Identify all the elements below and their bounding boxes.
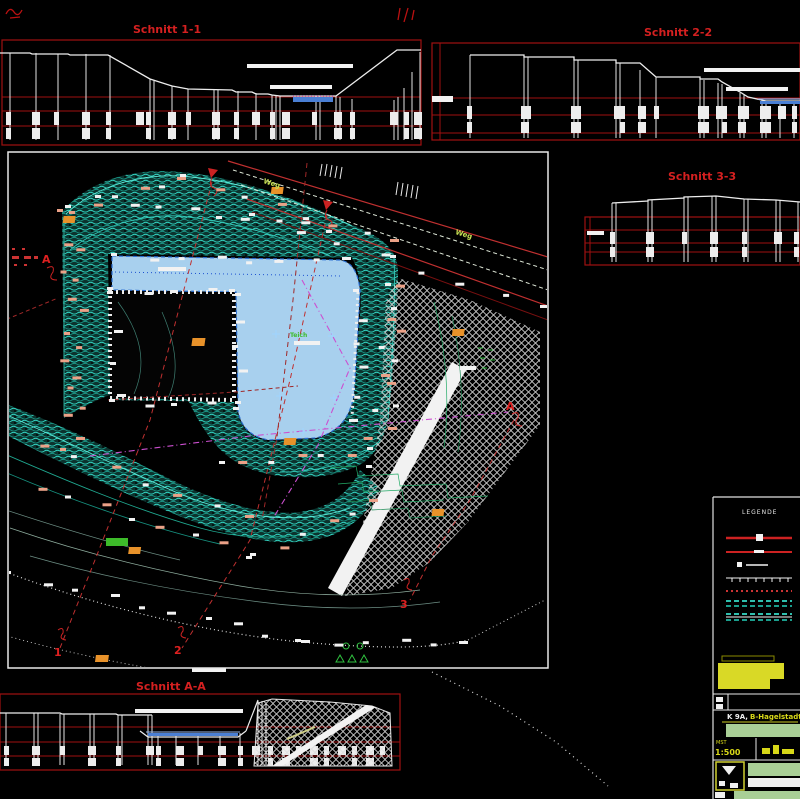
pond-label: Teich xyxy=(290,332,307,339)
tick-label xyxy=(68,298,77,301)
tick-label xyxy=(246,556,252,559)
tick-label xyxy=(94,204,103,207)
hatch-block xyxy=(792,122,797,133)
hatch-block xyxy=(350,128,355,139)
logo-triangle-icon xyxy=(722,766,736,775)
hatch-block xyxy=(4,746,9,755)
hatch-block xyxy=(4,758,9,766)
titleblock-code: K 9A, xyxy=(727,713,748,721)
tick-label xyxy=(242,196,248,199)
hatch-block xyxy=(32,758,40,766)
hatch-block xyxy=(60,746,65,755)
tick-label xyxy=(297,231,306,234)
tick-label xyxy=(95,195,101,198)
marker-1: 1 xyxy=(54,646,62,659)
hatch-block xyxy=(82,112,90,125)
hatch-block xyxy=(404,128,409,139)
hatch-block xyxy=(682,232,687,244)
tick-label xyxy=(110,362,116,365)
tick-label xyxy=(334,242,340,245)
hatch-block xyxy=(794,247,799,257)
tick-label xyxy=(241,218,250,221)
hatch-block xyxy=(414,112,422,125)
hatch-block xyxy=(156,758,161,766)
tick-label xyxy=(159,185,165,188)
hatch-block xyxy=(146,112,151,125)
tick-label xyxy=(111,253,117,256)
hatch-block xyxy=(620,106,625,119)
tick-label xyxy=(233,407,239,410)
tick-label xyxy=(385,283,391,286)
hatch-block xyxy=(270,112,275,125)
tick-label xyxy=(301,640,310,643)
hatch-block xyxy=(792,106,797,119)
tick-label xyxy=(365,232,371,235)
tick-label xyxy=(367,447,373,450)
titleblock-white-bar xyxy=(748,778,800,787)
tick-label xyxy=(330,519,339,522)
hatch-block xyxy=(252,112,260,125)
tick-label xyxy=(268,461,274,464)
tick-label xyxy=(76,437,85,440)
hatch-block xyxy=(282,112,290,125)
tick-label xyxy=(112,195,118,198)
hatch-block xyxy=(32,128,40,139)
section-1-1-title: Schnitt 1-1 xyxy=(133,23,201,36)
cad-canvas[interactable]: Schnitt 1-1 Schnitt 2-2 Schnitt 3-3 Schn… xyxy=(0,0,800,799)
marker-2: 2 xyxy=(174,644,182,657)
tick-label xyxy=(72,589,78,592)
tick-label xyxy=(179,257,185,260)
hatch-block xyxy=(218,746,226,755)
tick-label xyxy=(215,504,221,507)
hatch-block xyxy=(722,122,727,133)
tick-label xyxy=(459,641,468,644)
tick-label xyxy=(72,376,81,379)
tick-label xyxy=(274,260,283,263)
marker-a-left: A xyxy=(42,253,51,266)
hatch-block xyxy=(116,746,121,755)
tick-label xyxy=(250,553,256,556)
tick-label xyxy=(209,288,218,291)
tick-label xyxy=(303,217,309,220)
tick-label xyxy=(156,206,162,209)
hatch-block xyxy=(146,746,154,755)
hatch-block xyxy=(742,247,747,257)
stray-red-glyphs xyxy=(6,8,414,22)
tick-label xyxy=(40,445,49,448)
tick-label xyxy=(109,399,115,402)
hatch-block xyxy=(6,128,11,139)
tick-label xyxy=(278,203,287,206)
tick-label xyxy=(295,639,301,642)
tick-label xyxy=(239,370,248,373)
tick-label xyxy=(73,279,79,282)
section-3-3: Schnitt 3-3 xyxy=(585,170,800,265)
tick-label xyxy=(397,330,406,333)
hatch-block xyxy=(54,112,59,125)
hatch-block xyxy=(156,746,161,755)
tick-label xyxy=(318,454,324,457)
tick-label xyxy=(326,230,332,233)
section-a-a-title: Schnitt A-A xyxy=(136,680,206,693)
hatch-block xyxy=(646,232,654,244)
tick-label xyxy=(60,448,66,451)
tick-label xyxy=(390,239,399,242)
hatch-block xyxy=(744,106,749,119)
tick-label xyxy=(71,455,77,458)
tick-label xyxy=(277,220,283,223)
tick-label xyxy=(402,639,411,642)
tick-label xyxy=(235,293,241,296)
title-block: K 9A, B-Hagelstadt MST 1:500 xyxy=(713,656,800,799)
hatch-block xyxy=(176,758,184,766)
tick-label xyxy=(354,342,360,345)
tick-label xyxy=(145,292,154,295)
tick-label xyxy=(39,488,48,491)
tick-label xyxy=(64,332,70,335)
tree-symbols xyxy=(336,643,368,674)
hatch-block xyxy=(521,122,529,133)
tick-label xyxy=(112,466,121,469)
tick-label xyxy=(387,382,396,385)
tick-label xyxy=(229,289,235,292)
tick-label xyxy=(150,259,159,262)
tick-label xyxy=(177,177,186,180)
tick-label xyxy=(348,454,357,457)
tick-label xyxy=(328,224,337,227)
hatch-block xyxy=(778,106,786,119)
tick-label xyxy=(431,643,437,646)
titleblock-name: B-Hagelstadt xyxy=(750,713,800,721)
hatch-block xyxy=(610,232,615,244)
tick-label xyxy=(359,319,368,322)
tick-label xyxy=(114,330,123,333)
hatch-block xyxy=(234,112,239,125)
tick-label xyxy=(249,213,255,216)
island xyxy=(110,292,234,400)
tick-label xyxy=(238,461,247,464)
tick-label xyxy=(44,583,53,586)
tick-label xyxy=(503,294,509,297)
tick-label xyxy=(76,248,85,251)
hatch-block xyxy=(238,746,243,755)
hatch-block xyxy=(638,122,646,133)
tick-label xyxy=(369,499,378,502)
water-surface xyxy=(760,101,800,104)
section-2-2-title: Schnitt 2-2 xyxy=(644,26,712,39)
tick-label xyxy=(57,209,63,212)
hatch-block xyxy=(32,112,40,125)
legend-title: LEGENDE xyxy=(742,509,777,516)
green-field-marker xyxy=(106,538,128,546)
tick-label xyxy=(301,221,310,224)
hatch-block xyxy=(710,247,718,257)
hatch-block xyxy=(212,112,220,125)
hatch-block xyxy=(576,106,581,119)
hatch-block xyxy=(218,758,226,766)
hatch-block xyxy=(722,106,727,119)
hatch-block xyxy=(467,106,472,119)
tick-label xyxy=(107,291,113,294)
marker-a-right: A xyxy=(506,400,515,413)
section-2-2: Schnitt 2-2 xyxy=(432,26,800,140)
tick-label xyxy=(232,345,238,348)
hatch-block xyxy=(106,112,111,125)
hatch-block xyxy=(467,122,472,133)
tick-label xyxy=(146,405,155,408)
hatch-block xyxy=(610,247,615,257)
tick-label xyxy=(334,644,343,647)
section-3-3-title: Schnitt 3-3 xyxy=(668,170,736,183)
tick-label xyxy=(60,359,69,362)
tick-label xyxy=(418,272,424,275)
tick-label xyxy=(117,394,126,397)
legend-row-contour-a xyxy=(726,601,792,606)
tick-label xyxy=(299,454,308,457)
hatch-block xyxy=(82,128,90,139)
tick-label xyxy=(65,496,71,499)
hatch-block xyxy=(638,106,646,119)
tick-label xyxy=(363,641,369,644)
hatch-block xyxy=(646,247,654,257)
tick-label xyxy=(156,526,165,529)
hatch-block xyxy=(312,112,317,125)
legend-row-contour-b xyxy=(726,614,792,620)
tick-label xyxy=(216,216,222,219)
tick-label xyxy=(364,437,373,440)
tick-label xyxy=(65,205,71,208)
hatch-block xyxy=(32,746,40,755)
hatch-block xyxy=(186,112,191,125)
tick-label xyxy=(1,473,7,476)
hatch-block xyxy=(654,106,659,119)
tick-label xyxy=(167,612,176,615)
hatch-block xyxy=(766,106,771,119)
tick-label xyxy=(64,414,73,417)
tick-label xyxy=(193,534,199,537)
tick-label xyxy=(131,204,140,207)
tick-label xyxy=(391,307,397,310)
tick-label xyxy=(191,207,200,210)
hatch-block xyxy=(176,746,184,755)
tick-label xyxy=(349,419,358,422)
tick-label xyxy=(171,290,177,293)
tick-label xyxy=(216,188,225,191)
tick-label xyxy=(393,404,399,407)
tick-label xyxy=(218,256,227,259)
boundary-line-continuation xyxy=(432,672,608,786)
hatch-block xyxy=(350,112,355,125)
tick-label xyxy=(262,635,268,638)
tick-label xyxy=(350,513,356,516)
hatch-block xyxy=(238,758,243,766)
section-1-1: Schnitt 1-1 xyxy=(0,23,422,145)
marker-3: 3 xyxy=(400,598,408,611)
hatch-block xyxy=(414,128,422,139)
tick-label xyxy=(353,289,359,292)
hatch-block xyxy=(710,232,718,244)
titleblock-green-bar-2 xyxy=(748,763,800,776)
tick-label xyxy=(354,396,360,399)
hatch-block xyxy=(6,112,11,125)
hatch-block xyxy=(704,106,709,119)
hatch-block xyxy=(282,128,290,139)
hatch-block xyxy=(116,758,121,766)
tick-label xyxy=(0,427,5,430)
hatch-block xyxy=(404,112,409,125)
tick-label xyxy=(382,253,391,256)
tick-label xyxy=(171,403,177,406)
legend-row-section-line xyxy=(726,534,792,541)
section-a-a: Schnitt A-A xyxy=(0,668,400,770)
tick-label xyxy=(61,271,67,274)
titleblock-green-bar-1 xyxy=(726,724,800,737)
legend-row-dashed-red xyxy=(726,550,792,553)
hatch-block xyxy=(88,746,96,755)
water-surface xyxy=(148,733,238,736)
hatch-block xyxy=(526,106,531,119)
tick-label xyxy=(68,387,74,390)
tick-label xyxy=(300,533,306,536)
tick-label xyxy=(208,402,217,405)
titleblock-green-bar-3 xyxy=(734,791,800,799)
tick-label xyxy=(379,346,385,349)
scale-label: MST xyxy=(716,740,727,746)
tick-label xyxy=(173,494,182,497)
hatch-block xyxy=(270,128,275,139)
tick-label xyxy=(69,211,75,214)
tick-label xyxy=(180,174,186,177)
hatch-block xyxy=(334,112,342,125)
road-label-2: Weg xyxy=(454,228,473,241)
tick-label xyxy=(235,401,241,404)
tick-label xyxy=(206,617,212,620)
hatch-block xyxy=(198,746,203,755)
tick-label xyxy=(107,287,113,290)
tick-label xyxy=(381,374,390,377)
hatch-block xyxy=(334,128,342,139)
approval-scribble xyxy=(762,745,794,754)
hatch-block xyxy=(168,128,176,139)
tick-label xyxy=(314,258,320,261)
water-surface xyxy=(293,97,333,102)
tick-label xyxy=(280,546,289,549)
hatch-block xyxy=(766,122,771,133)
tick-label xyxy=(139,606,145,609)
tick-label xyxy=(388,427,397,430)
hatch-block xyxy=(704,122,709,133)
hatch-block xyxy=(794,232,799,244)
hatch-block xyxy=(234,128,239,139)
tick-label xyxy=(219,461,225,464)
tick-label xyxy=(103,503,112,506)
scale-value: 1:500 xyxy=(715,748,741,757)
tick-label xyxy=(392,359,398,362)
tick-label xyxy=(455,283,464,286)
tick-label xyxy=(236,321,245,324)
tick-label xyxy=(342,257,351,260)
tick-label xyxy=(80,309,89,312)
tick-label xyxy=(372,409,378,412)
tick-label xyxy=(220,541,229,544)
tick-label xyxy=(141,187,150,190)
tick-label xyxy=(390,255,396,258)
site-plan[interactable]: Weg Weg Teich 1 2 3 A A xyxy=(0,152,549,678)
hatch-block xyxy=(136,112,144,125)
tick-label xyxy=(64,243,73,246)
tick-label xyxy=(366,465,372,468)
hatch-block xyxy=(212,128,220,139)
tick-label xyxy=(245,515,254,518)
hatch-block xyxy=(146,128,151,139)
legend-row-white-line xyxy=(737,562,768,567)
hatch-block xyxy=(168,112,176,125)
tick-label xyxy=(396,285,405,288)
tick-label xyxy=(387,318,396,321)
legend-row-fence xyxy=(726,578,792,582)
hatch-block xyxy=(390,112,398,125)
tick-label xyxy=(80,407,86,410)
tick-label xyxy=(111,594,120,597)
hatch-block xyxy=(88,758,96,766)
hatch-block xyxy=(576,122,581,133)
hatch-block xyxy=(774,232,782,244)
hatch-block xyxy=(106,128,111,139)
hatch-block xyxy=(738,122,746,133)
hatch-block xyxy=(742,232,747,244)
tick-label xyxy=(76,346,82,349)
tick-label xyxy=(129,518,135,521)
tick-label xyxy=(359,366,368,369)
tick-label xyxy=(234,622,243,625)
tick-label xyxy=(246,261,252,264)
hatch-block xyxy=(620,122,625,133)
tick-label xyxy=(143,483,149,486)
